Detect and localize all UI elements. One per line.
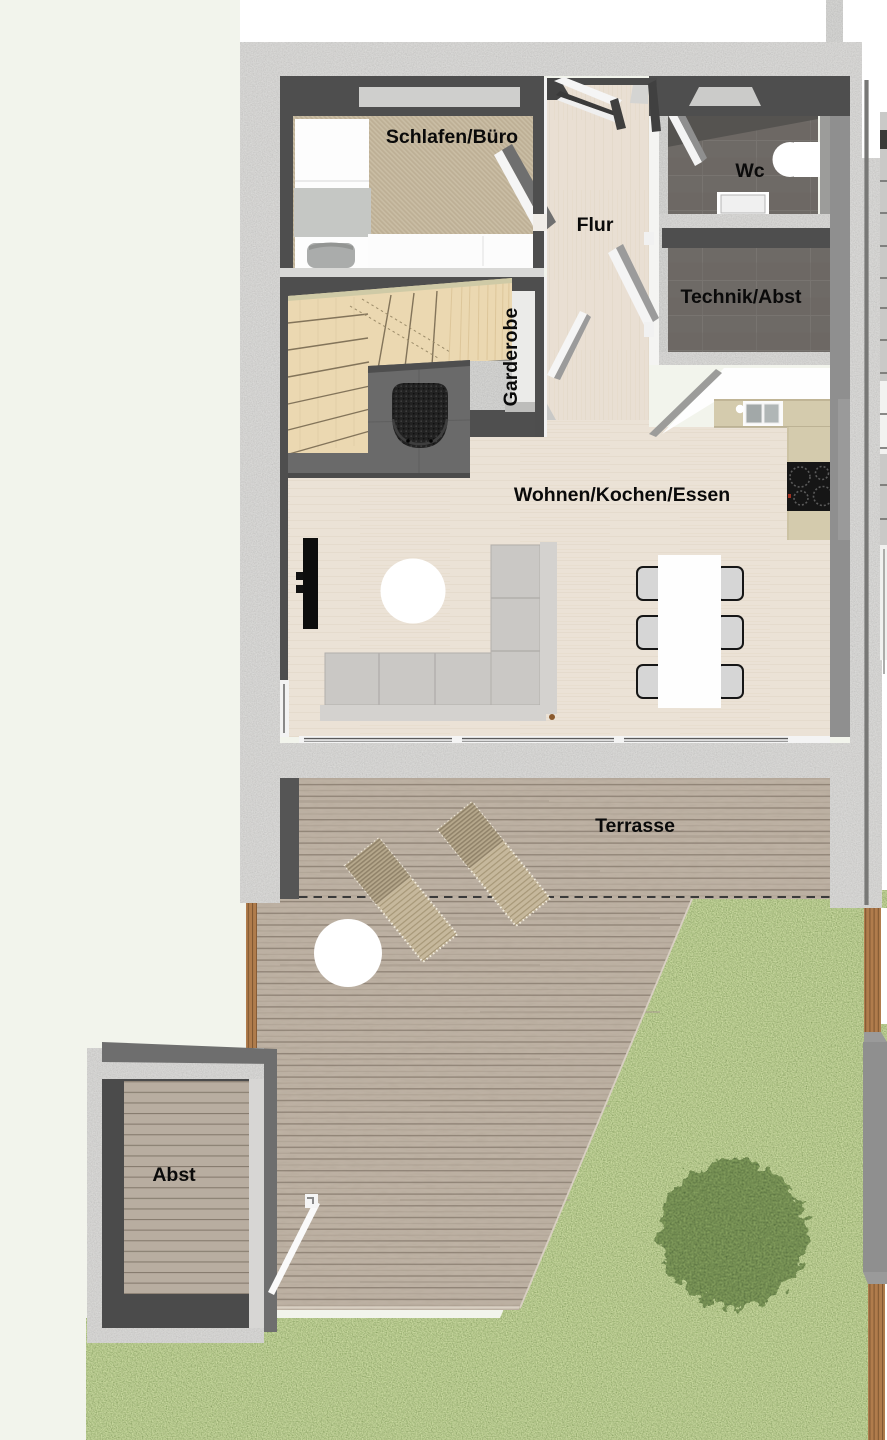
svg-text:Garderobe: Garderobe (500, 308, 522, 407)
svg-text:Abst: Abst (152, 1164, 196, 1186)
svg-text:Schlafen/Büro: Schlafen/Büro (386, 126, 518, 148)
svg-text:Wohnen/Kochen/Essen: Wohnen/Kochen/Essen (514, 484, 730, 506)
svg-text:Terrasse: Terrasse (595, 815, 675, 837)
svg-text:Wc: Wc (735, 160, 764, 182)
svg-text:Technik/Abst: Technik/Abst (681, 286, 802, 308)
svg-text:Flur: Flur (577, 214, 614, 236)
